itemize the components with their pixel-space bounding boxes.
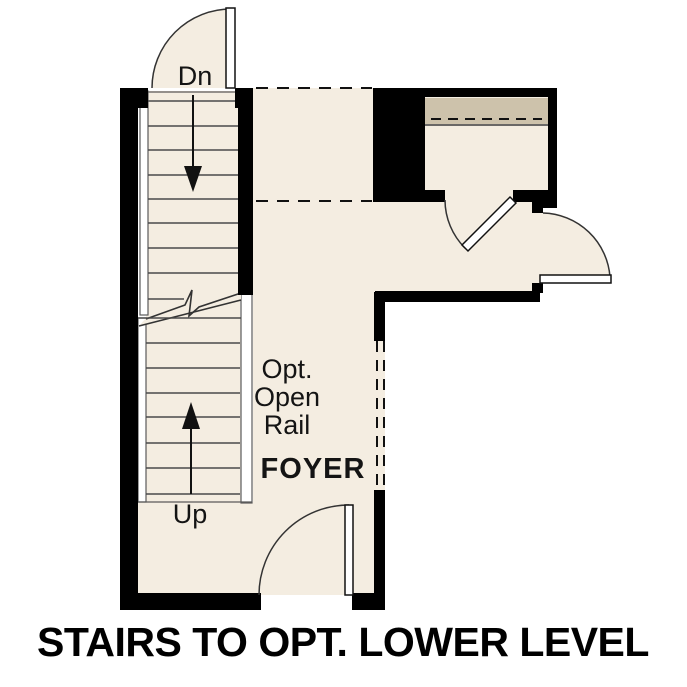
wing-bottom-wall: [375, 291, 540, 302]
plan-caption: STAIRS TO OPT. LOWER LEVEL: [37, 628, 649, 656]
top-left-wall-corner: [120, 88, 148, 108]
opt-open-rail-note: Opt. Open Rail: [254, 355, 320, 439]
floor-plan-drawing: [0, 0, 687, 687]
bottom-door-leaf: [345, 505, 353, 595]
right-wall-lower: [374, 490, 385, 610]
opt-open-rail-line2: Open: [254, 383, 320, 411]
opt-open-rail-line3: Rail: [254, 411, 320, 439]
top-door-leaf: [226, 8, 235, 88]
entry-door-top-jamb-stub: [532, 200, 543, 213]
closet-door-opening: [445, 188, 513, 202]
entry-door-leaf: [540, 275, 611, 283]
bottom-wall-left: [120, 593, 261, 610]
open-rail-stringer: [241, 292, 252, 503]
floor-plan-page: Dn Up Opt. Open Rail FOYER STAIRS TO OPT…: [0, 0, 687, 687]
closet-shelf: [425, 98, 548, 124]
foyer-room-label: FOYER: [261, 455, 366, 483]
right-wall-upper: [374, 292, 385, 341]
up-label: Up: [173, 500, 208, 528]
closet: [373, 88, 557, 202]
bottom-wall-right: [352, 593, 385, 610]
lower-stair-left-stringer: [138, 318, 146, 502]
left-wall: [120, 88, 138, 610]
dn-label: Dn: [178, 62, 213, 90]
upper-stair-left-stringer: [140, 91, 148, 315]
opt-open-rail-line1: Opt.: [254, 355, 320, 383]
stair-right-wall: [238, 88, 253, 295]
